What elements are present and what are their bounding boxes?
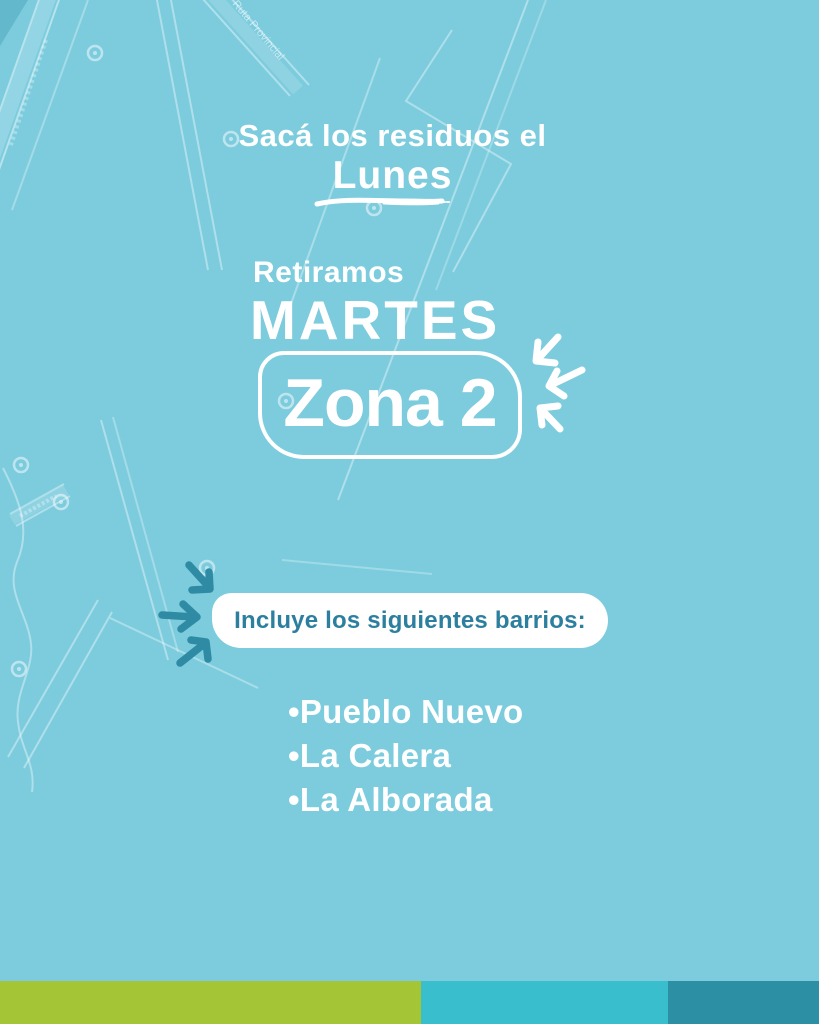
neighborhood-name: La Alborada — [300, 781, 493, 818]
map-marker-icon — [200, 561, 214, 575]
neighborhoods-pill: Incluye los siguientes barrios: — [212, 593, 608, 648]
list-item: •La Calera — [288, 734, 524, 778]
map-marker-icon — [12, 662, 26, 676]
neighborhood-name: Pueblo Nuevo — [300, 693, 524, 730]
headline-day-text: Lunes — [0, 154, 785, 198]
footer-teal-segment — [421, 981, 668, 1024]
footer-dark-teal-segment — [668, 981, 819, 1024]
list-item: •La Alborada — [288, 778, 524, 822]
zone-label: Zona 2 — [283, 364, 496, 446]
map-corner-shape — [0, 0, 28, 46]
arrow-down-right-icon — [189, 565, 210, 590]
map-road-labeled: Ruta Provincial — [202, 0, 309, 96]
hand-drawn-underline — [314, 194, 454, 210]
pickup-day: MARTES — [250, 288, 500, 352]
bullet: • — [288, 781, 300, 818]
map-marker-icon — [54, 495, 68, 509]
map-road-label: Ruta Provincial — [230, 0, 287, 63]
map-marker-icon — [14, 458, 28, 472]
headline-block: Sacá los residuos el Lunes — [0, 118, 785, 198]
arrow-left-icon — [549, 370, 582, 396]
arrow-up-right-icon — [180, 640, 208, 663]
bullet: • — [288, 737, 300, 774]
arrow-up-left-icon — [540, 406, 560, 429]
arrow-right-icon — [162, 604, 197, 629]
footer-green-segment — [0, 981, 421, 1024]
map-side-street — [10, 484, 70, 526]
flyer-canvas: Ruta Provincial — [0, 0, 819, 1024]
neighborhood-name: La Calera — [300, 737, 451, 774]
zone-box: Zona 2 — [258, 351, 522, 459]
bullet: • — [288, 693, 300, 730]
pickup-label: Retiramos — [253, 256, 404, 290]
neighborhoods-title: Incluye los siguientes barrios: — [234, 607, 586, 635]
map-marker-icon — [88, 46, 102, 60]
list-item: •Pueblo Nuevo — [288, 690, 524, 734]
map-stream-line — [3, 468, 33, 792]
neighborhoods-list: •Pueblo Nuevo •La Calera •La Alborada — [288, 690, 524, 822]
headline-text: Sacá los residuos el — [0, 118, 785, 154]
footer-stripe — [0, 981, 819, 1024]
arrow-down-left-icon — [536, 337, 558, 363]
